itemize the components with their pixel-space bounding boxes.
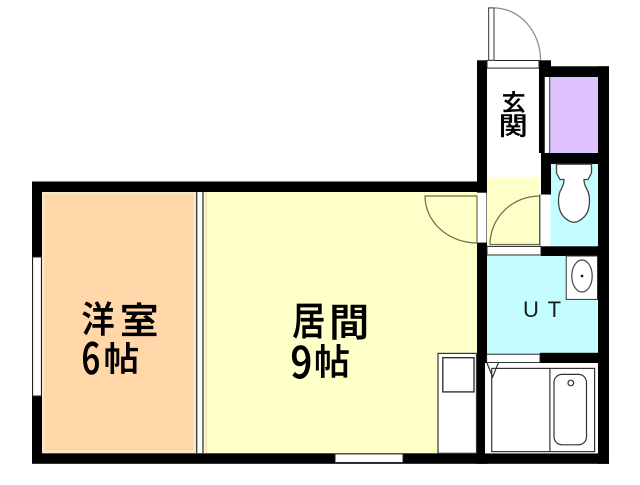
svg-text:U T: U T xyxy=(523,297,563,322)
